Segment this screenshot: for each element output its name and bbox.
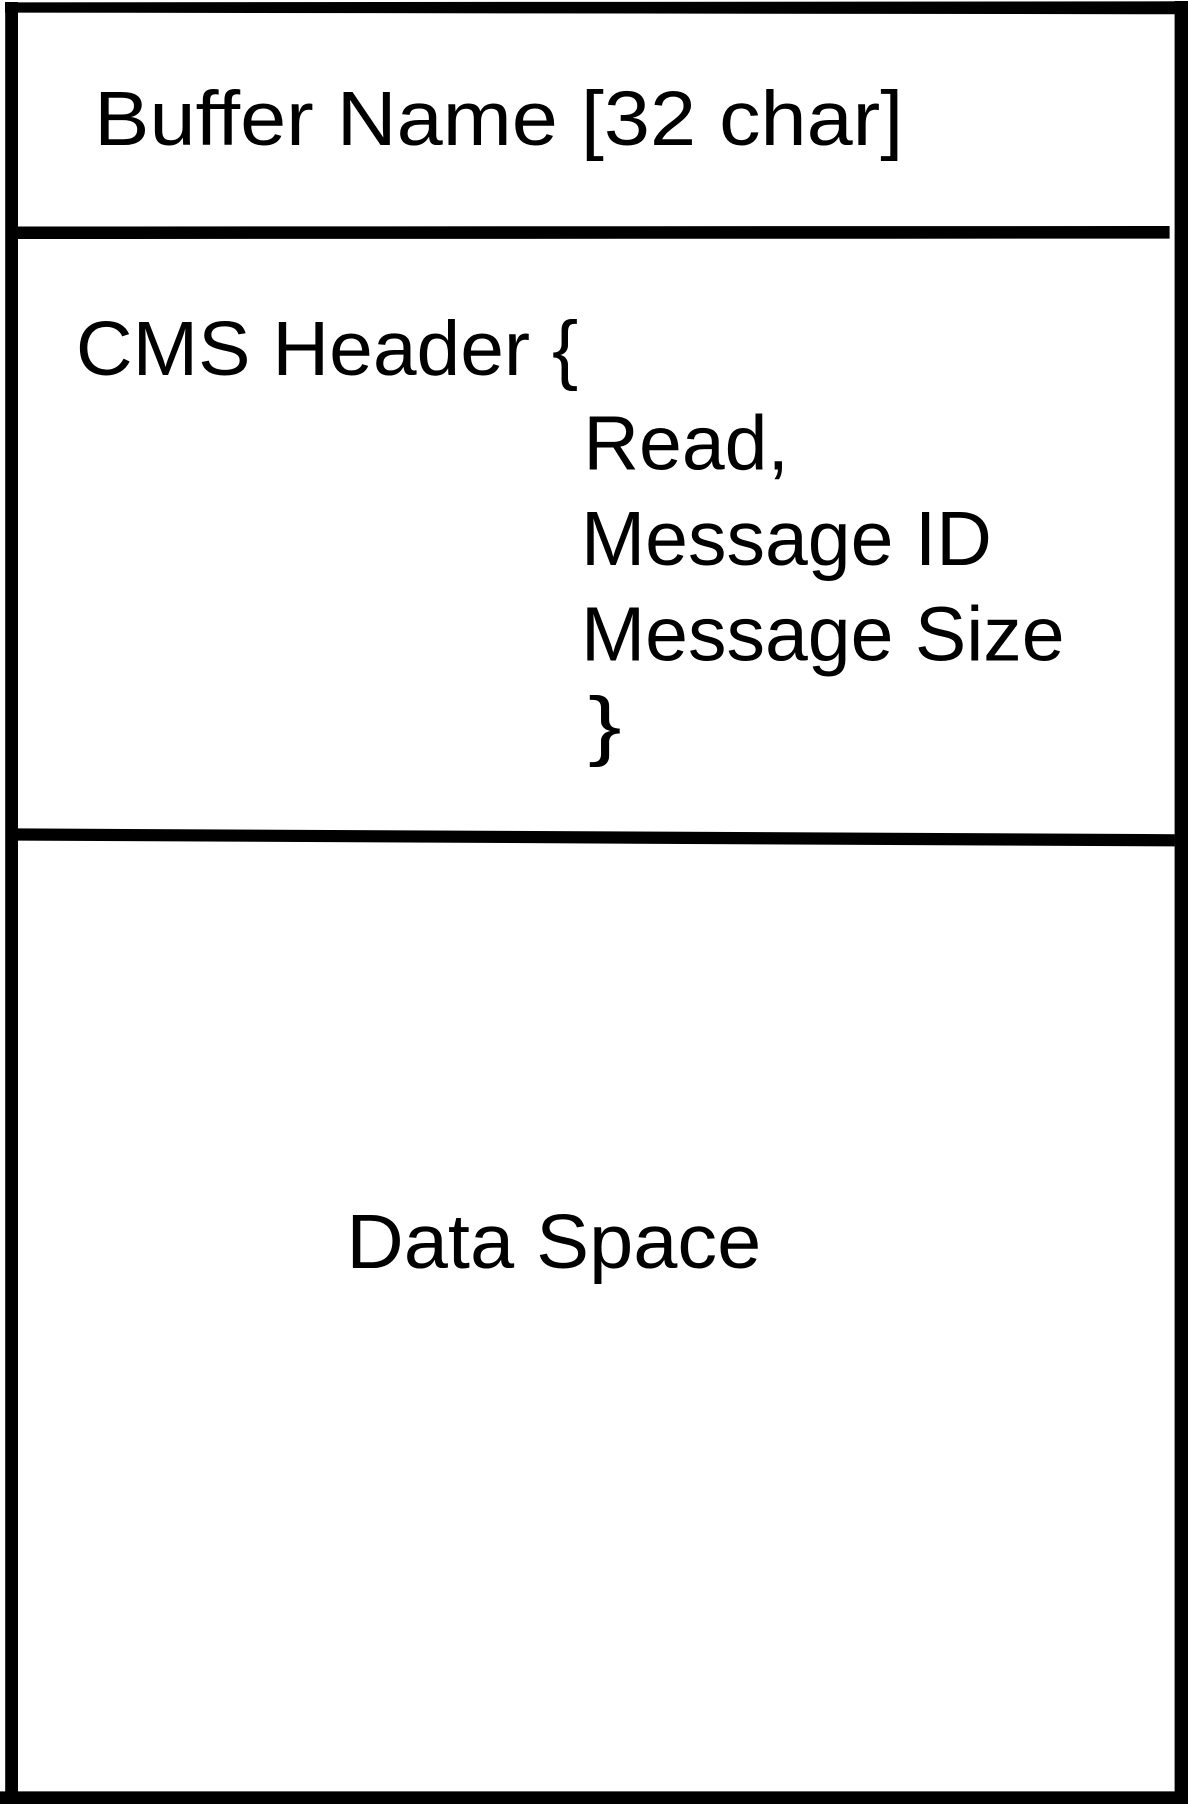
svg-text:Message ID: Message ID [581, 496, 992, 582]
svg-text:Message Size: Message Size [581, 592, 1065, 678]
svg-text:Read,: Read, [583, 401, 788, 487]
svg-text:}: } [588, 682, 621, 768]
svg-text:Buffer Name [32 char]: Buffer Name [32 char] [94, 76, 903, 162]
svg-text:CMS Header {: CMS Header { [76, 306, 578, 392]
svg-text:Data Space: Data Space [346, 1199, 761, 1285]
